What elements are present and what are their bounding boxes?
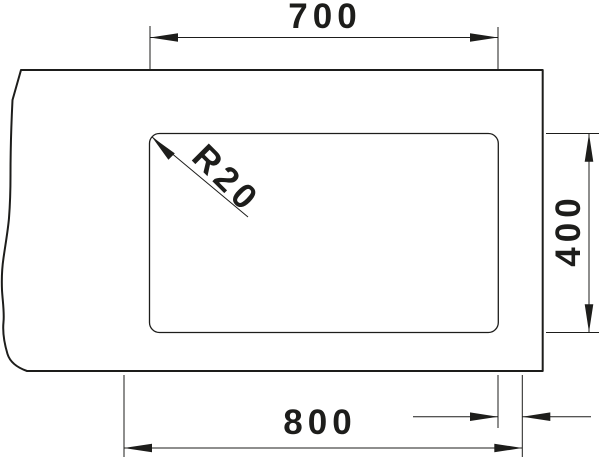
sink-cutout-drawing: 700 400 800 [0, 0, 600, 458]
arrowhead-left-icon [150, 33, 178, 42]
arrowhead-right-icon [470, 33, 498, 42]
dimension-bottom-width: 800 [124, 375, 522, 457]
dimension-right-height: 400 [546, 134, 599, 333]
countertop-outline [2, 70, 543, 371]
arrowhead-left-icon [124, 444, 152, 453]
drawing-canvas: 700 400 800 [0, 0, 600, 458]
dimension-label-top-width: 700 [288, 0, 361, 36]
arrowhead-pointing-right-icon [470, 412, 498, 421]
dimension-label-bottom-width: 800 [283, 403, 356, 442]
arrowhead-pointing-left-icon [522, 412, 550, 421]
radius-label: R20 [184, 137, 268, 221]
radius-arrowhead-icon [152, 137, 175, 160]
arrowhead-right-icon [494, 444, 522, 453]
dimension-top-width: 700 [150, 0, 498, 69]
arrowhead-down-icon [585, 304, 594, 332]
dimension-right-offset [413, 375, 591, 428]
radius-callout: R20 [152, 137, 268, 221]
dimension-label-right-height: 400 [549, 193, 588, 266]
arrowhead-up-icon [585, 134, 594, 162]
